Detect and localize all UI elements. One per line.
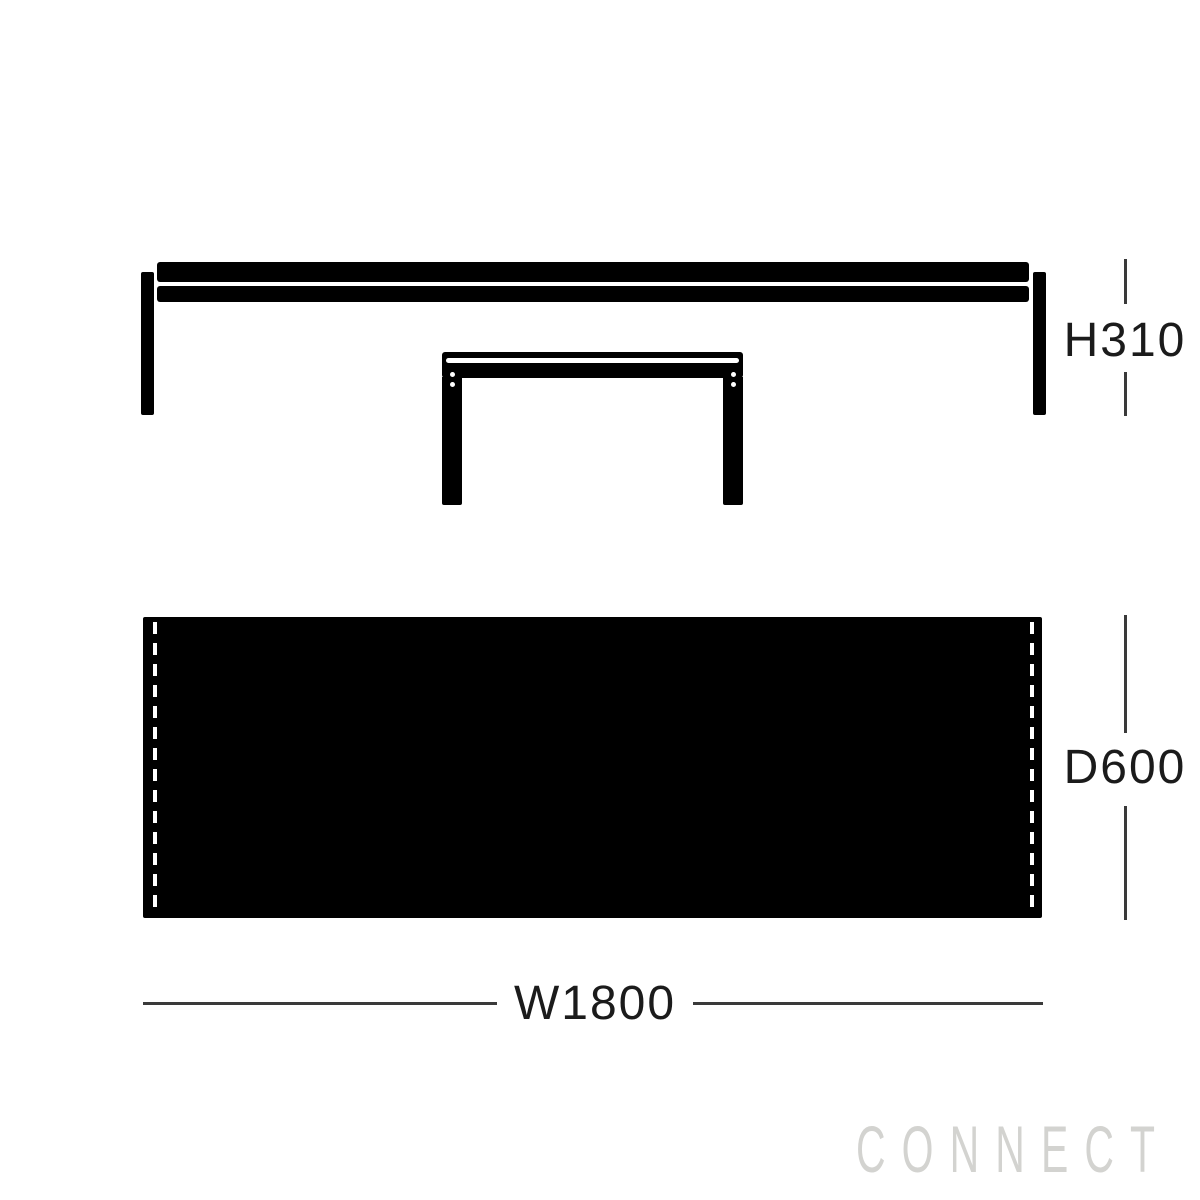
screw-dot (450, 372, 455, 377)
front-view-top-slab (157, 262, 1029, 282)
front-view-right-leg (1033, 272, 1046, 415)
screw-dot (731, 382, 736, 387)
side-view-edge-stripe (446, 358, 739, 363)
side-view-top-slab (442, 352, 743, 378)
side-view-left-leg (442, 377, 462, 505)
height-dimension-line-upper (1124, 259, 1127, 304)
furniture-dimension-diagram: H310 D600 W1800 CONNECT (0, 0, 1200, 1200)
stitch-line-right (1030, 622, 1034, 913)
height-dimension-line-lower (1124, 372, 1127, 416)
connect-watermark: CONNECT (856, 1116, 1171, 1182)
front-view-bottom-slab (157, 286, 1029, 302)
screw-dot (731, 372, 736, 377)
width-dimension-label: W1800 (514, 980, 676, 1028)
front-view-left-leg (141, 272, 154, 415)
top-view-panel (143, 617, 1042, 918)
depth-dimension-label: D600 (1064, 744, 1187, 792)
stitch-line-left (153, 622, 157, 913)
width-dimension-line-right (693, 1002, 1043, 1005)
depth-dimension-line-upper (1124, 615, 1127, 733)
height-dimension-label: H310 (1064, 317, 1187, 365)
width-dimension-line-left (143, 1002, 497, 1005)
side-view-right-leg (723, 377, 743, 505)
depth-dimension-line-lower (1124, 806, 1127, 920)
screw-dot (450, 382, 455, 387)
